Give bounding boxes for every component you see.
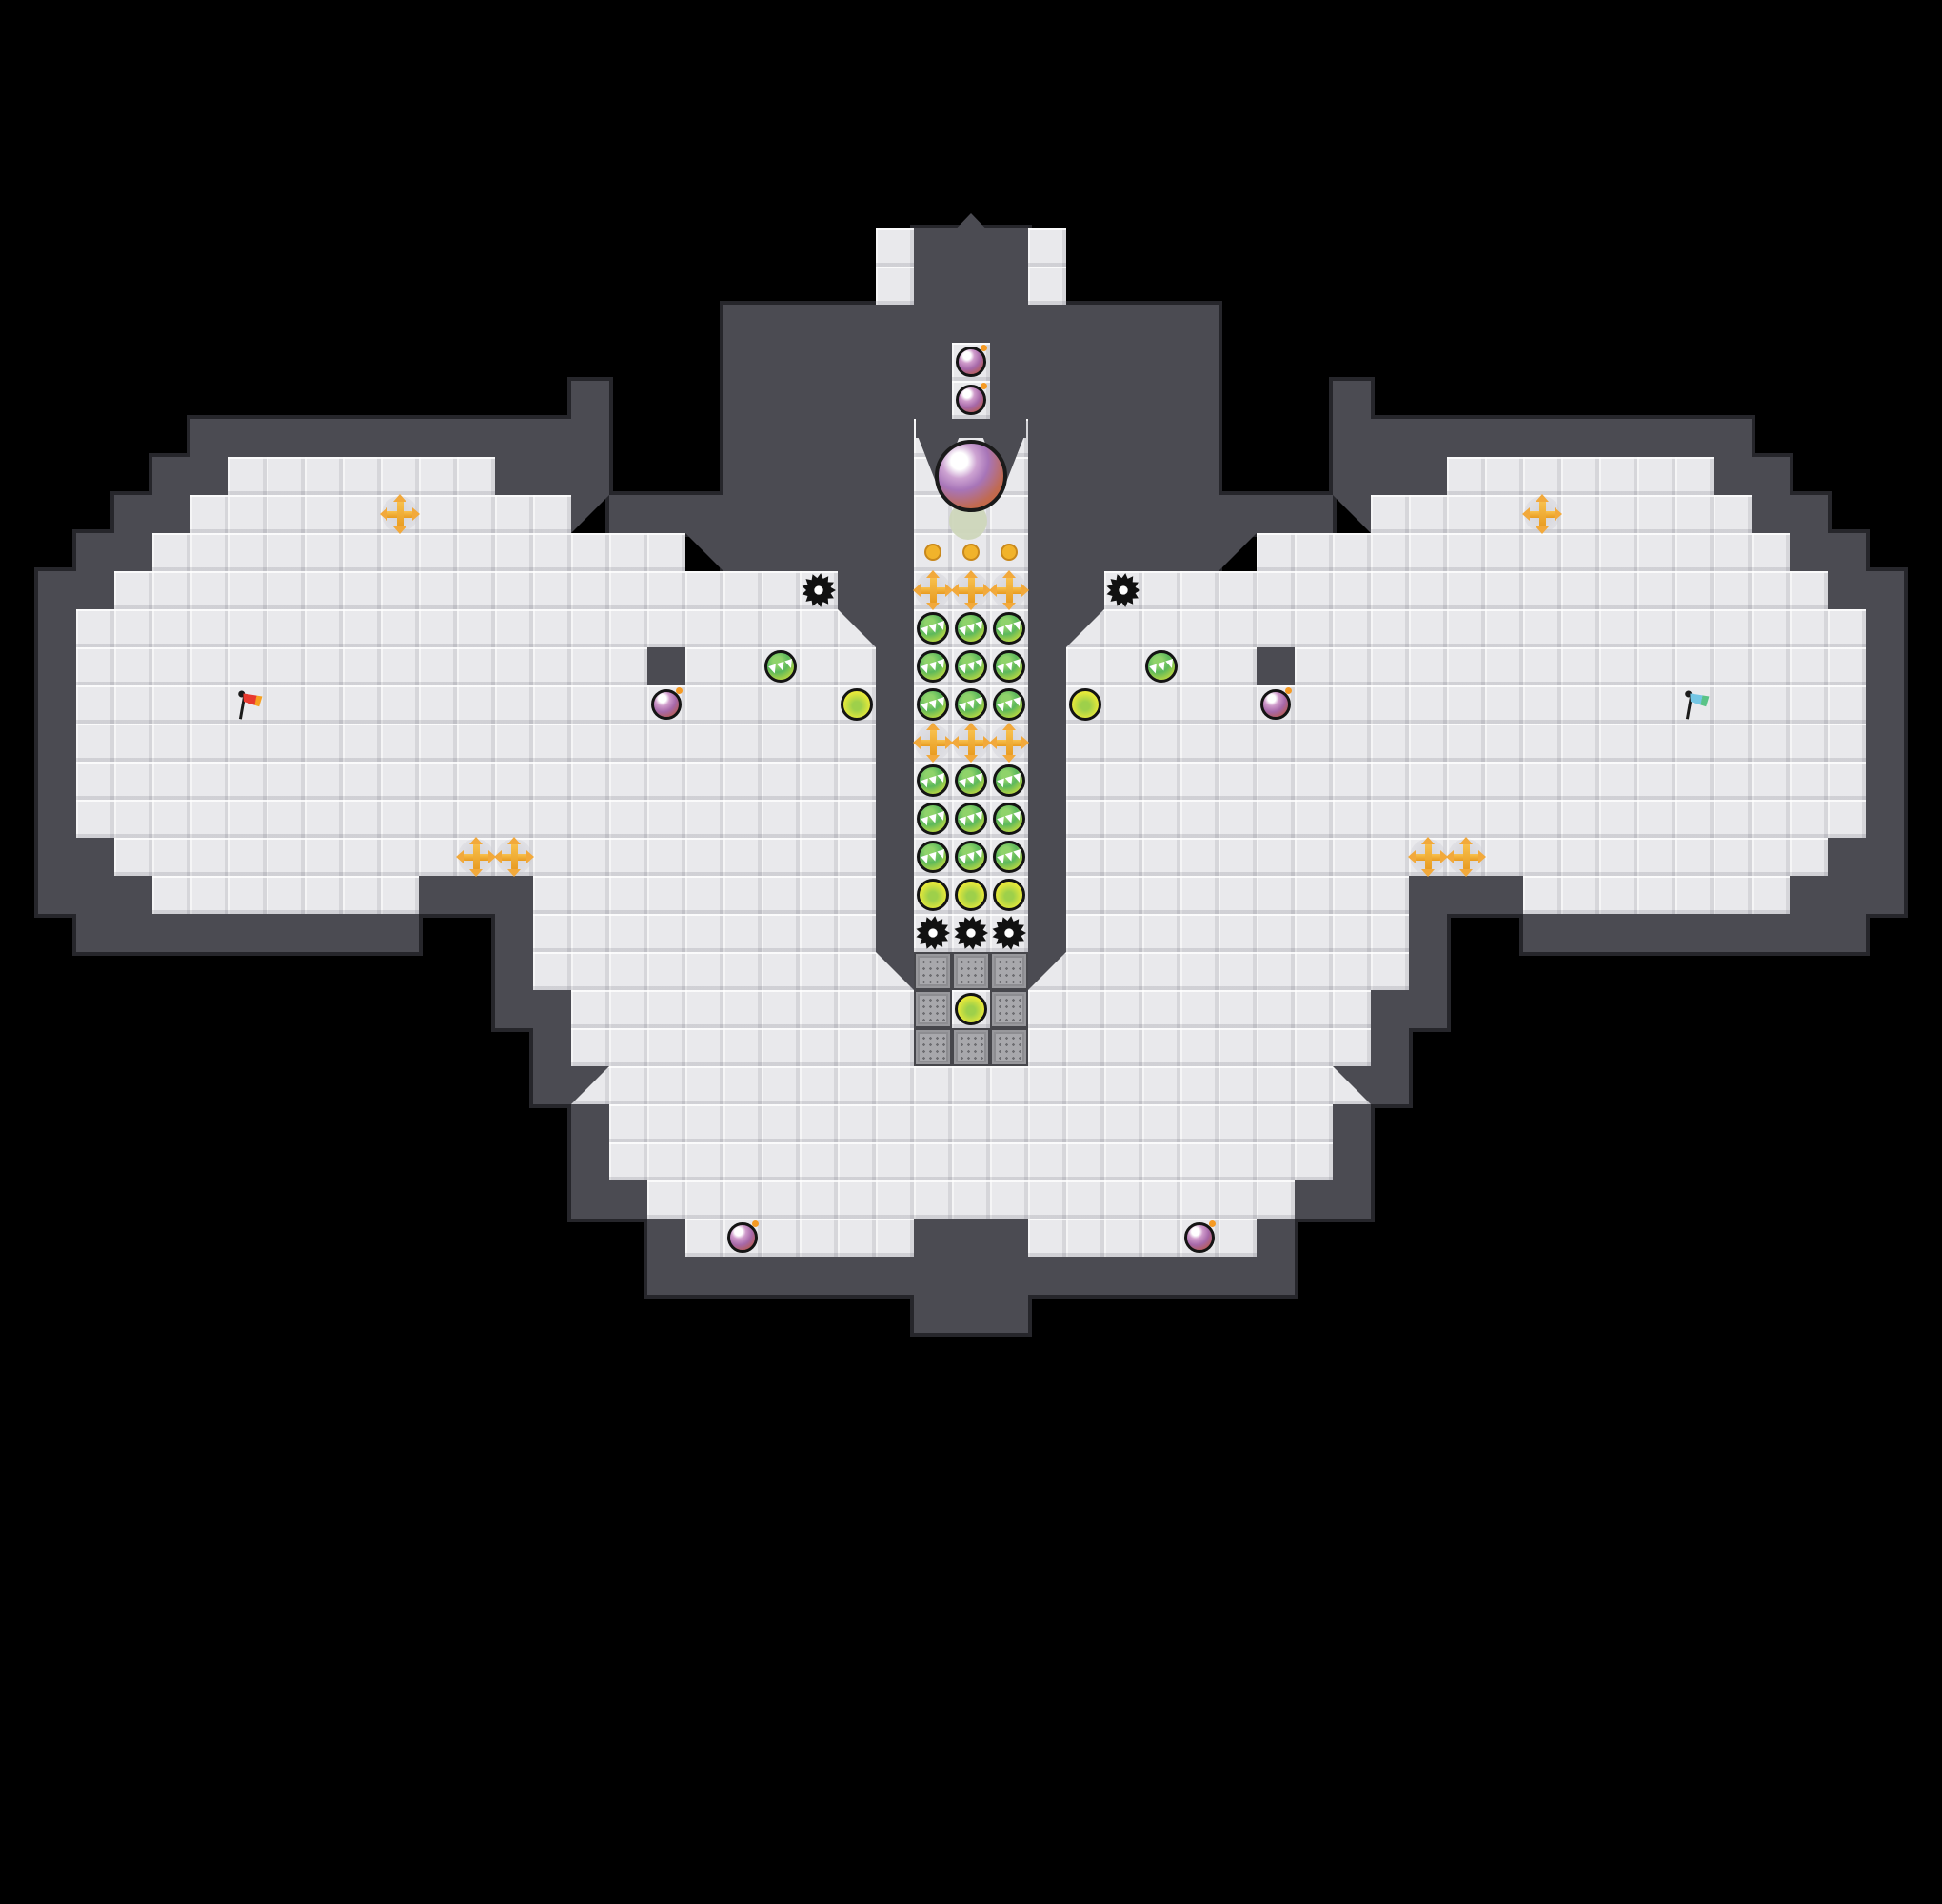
powerup-lemon[interactable] — [1069, 688, 1101, 721]
powerup-lemon[interactable] — [955, 879, 987, 911]
floor-region — [1066, 876, 1409, 990]
powerup-orb[interactable] — [993, 612, 1025, 645]
wall — [76, 533, 152, 571]
powerup-lemon[interactable] — [955, 993, 987, 1025]
spike-hazard[interactable] — [916, 916, 950, 950]
bomb-fuse — [752, 1220, 759, 1227]
boost-pad[interactable] — [458, 839, 494, 875]
bomb[interactable] — [956, 347, 986, 377]
boost-pad[interactable] — [1410, 839, 1446, 875]
boost-pad[interactable] — [1524, 496, 1560, 532]
wall — [571, 1180, 647, 1219]
powerup-orb[interactable] — [917, 764, 949, 797]
wall — [1714, 457, 1790, 495]
wall — [1028, 305, 1066, 952]
wall — [990, 343, 1028, 419]
bomb[interactable] — [651, 689, 682, 720]
spike-hazard[interactable] — [954, 916, 988, 950]
powerup-chevrons — [956, 653, 986, 678]
floor-region — [76, 609, 876, 838]
powerup-orb[interactable] — [993, 764, 1025, 797]
floor-region — [228, 457, 533, 495]
gate-tile[interactable] — [952, 952, 990, 990]
wall — [1828, 838, 1904, 876]
powerup-chevrons — [918, 615, 948, 640]
powerup-orb[interactable] — [917, 650, 949, 683]
wall — [1866, 609, 1904, 838]
wall-diagonal — [1333, 495, 1371, 533]
powerup-chevrons — [956, 805, 986, 830]
powerup-orb[interactable] — [993, 803, 1025, 835]
red-flag[interactable] — [233, 687, 264, 722]
powerup-chevrons — [918, 805, 948, 830]
floor-region — [533, 876, 876, 990]
floor-region — [571, 1066, 1371, 1104]
wall — [38, 876, 152, 914]
floor-region — [152, 533, 685, 571]
powerup-chevrons — [1146, 653, 1177, 678]
powerup-chevrons — [918, 767, 948, 792]
wall — [914, 1219, 1028, 1257]
floor-region — [571, 990, 914, 1066]
powerup-orb[interactable] — [917, 841, 949, 873]
spike-hazard[interactable] — [802, 573, 836, 607]
powerup-chevrons — [994, 691, 1024, 716]
powerup-chevrons — [956, 615, 986, 640]
floor-region — [1257, 533, 1790, 571]
wall — [914, 1295, 1028, 1333]
floor-region — [1028, 990, 1371, 1066]
gate-tile[interactable] — [990, 990, 1028, 1028]
bomb[interactable] — [956, 385, 986, 415]
boost-pad[interactable] — [991, 572, 1027, 608]
floor-region — [647, 1180, 1295, 1219]
powerup-chevrons — [994, 805, 1024, 830]
bomb-fuse — [1285, 687, 1292, 694]
wall — [495, 876, 533, 1028]
wall — [723, 305, 838, 571]
game-map-canvas[interactable] — [0, 0, 1942, 1904]
gate-tile[interactable] — [914, 1028, 952, 1066]
wall — [571, 381, 609, 495]
spike-hazard[interactable] — [1106, 573, 1140, 607]
boost-pad[interactable] — [496, 839, 532, 875]
wall — [914, 343, 952, 419]
powerup-orb[interactable] — [917, 803, 949, 835]
wall-diagonal — [1219, 533, 1257, 571]
powerup-lemon[interactable] — [841, 688, 873, 721]
floor-region — [1523, 876, 1790, 914]
floor-region — [1028, 228, 1066, 305]
boost-pad[interactable] — [915, 572, 951, 608]
powerup-orb[interactable] — [917, 612, 949, 645]
button-switch[interactable] — [1001, 544, 1018, 561]
floor-region — [1104, 571, 1828, 609]
bomb-fuse — [1209, 1220, 1216, 1227]
boost-pad[interactable] — [915, 724, 951, 761]
wall — [190, 419, 571, 457]
wall — [1790, 533, 1866, 571]
wall — [647, 1219, 685, 1257]
wall — [1104, 305, 1219, 571]
powerup-orb[interactable] — [993, 841, 1025, 873]
bomb[interactable] — [1184, 1222, 1215, 1253]
powerup-orb[interactable] — [955, 688, 987, 721]
boost-pad[interactable] — [953, 572, 989, 608]
boost-pad[interactable] — [1448, 839, 1484, 875]
button-switch[interactable] — [924, 544, 941, 561]
spike-hazard[interactable] — [992, 916, 1026, 950]
marsball[interactable] — [935, 440, 1007, 512]
floor-region — [609, 1104, 1333, 1180]
wall-diagonal — [685, 533, 723, 571]
powerup-chevrons — [918, 843, 948, 868]
powerup-chevrons — [918, 691, 948, 716]
wall — [38, 609, 76, 838]
wall — [647, 1257, 1295, 1295]
gate-tile[interactable] — [990, 952, 1028, 990]
powerup-orb[interactable] — [1145, 650, 1178, 683]
floor-region — [1066, 609, 1866, 838]
wall — [1523, 914, 1866, 952]
powerup-orb[interactable] — [764, 650, 797, 683]
wall — [1333, 1104, 1371, 1180]
wall-diagonal — [571, 495, 609, 533]
boost-pad[interactable] — [991, 724, 1027, 761]
wall — [1257, 647, 1295, 685]
wall — [1752, 495, 1828, 533]
boost-pad[interactable] — [382, 496, 418, 532]
powerup-chevrons — [956, 767, 986, 792]
boost-pad[interactable] — [953, 724, 989, 761]
blue-flag[interactable] — [1680, 687, 1711, 722]
wall — [1409, 876, 1447, 1028]
wall — [38, 571, 114, 609]
floor-region — [1409, 457, 1714, 495]
powerup-chevrons — [956, 843, 986, 868]
floor-region — [114, 571, 838, 609]
powerup-chevrons — [918, 653, 948, 678]
gate-tile[interactable] — [914, 952, 952, 990]
wall — [914, 228, 1028, 343]
wall — [1371, 419, 1752, 457]
gate-tile[interactable] — [990, 1028, 1028, 1066]
floor-region — [1028, 1219, 1257, 1257]
wall — [1219, 495, 1333, 533]
wall — [533, 990, 571, 1104]
wall — [609, 495, 723, 533]
powerup-chevrons — [994, 653, 1024, 678]
wall — [876, 305, 914, 952]
powerup-orb[interactable] — [955, 764, 987, 797]
wall — [838, 305, 876, 609]
wall — [1333, 457, 1447, 495]
chamber-band — [916, 419, 1026, 438]
flag-cloth — [243, 692, 263, 707]
wall — [114, 495, 190, 533]
powerup-lemon[interactable] — [917, 879, 949, 911]
button-switch[interactable] — [962, 544, 980, 561]
bomb-fuse — [981, 383, 987, 389]
powerup-chevrons — [765, 653, 796, 678]
powerup-orb[interactable] — [955, 841, 987, 873]
wall — [1257, 1219, 1295, 1257]
wall — [1295, 1180, 1371, 1219]
wall — [76, 914, 419, 952]
flag-cloth — [1690, 692, 1710, 707]
floor-region — [152, 876, 419, 914]
powerup-orb[interactable] — [955, 803, 987, 835]
gate-tile[interactable] — [952, 1028, 990, 1066]
powerup-orb[interactable] — [917, 688, 949, 721]
bomb-fuse — [676, 687, 683, 694]
powerup-lemon[interactable] — [993, 879, 1025, 911]
powerup-orb[interactable] — [955, 650, 987, 683]
wall — [1828, 571, 1904, 609]
bomb[interactable] — [727, 1222, 758, 1253]
gate-tile[interactable] — [914, 990, 952, 1028]
bomb-fuse — [981, 345, 987, 351]
bomb[interactable] — [1260, 689, 1291, 720]
powerup-orb[interactable] — [993, 650, 1025, 683]
powerup-chevrons — [956, 691, 986, 716]
wall — [647, 647, 685, 685]
powerup-orb[interactable] — [955, 612, 987, 645]
floor-region — [876, 228, 914, 305]
wall — [1790, 876, 1904, 914]
powerup-chevrons — [994, 843, 1024, 868]
wall — [152, 457, 228, 495]
wall — [38, 838, 114, 876]
powerup-chevrons — [994, 767, 1024, 792]
wall — [1066, 305, 1104, 609]
wall — [571, 1104, 609, 1180]
floor-region — [685, 1219, 914, 1257]
powerup-orb[interactable] — [993, 688, 1025, 721]
powerup-chevrons — [994, 615, 1024, 640]
wall — [1371, 990, 1409, 1104]
